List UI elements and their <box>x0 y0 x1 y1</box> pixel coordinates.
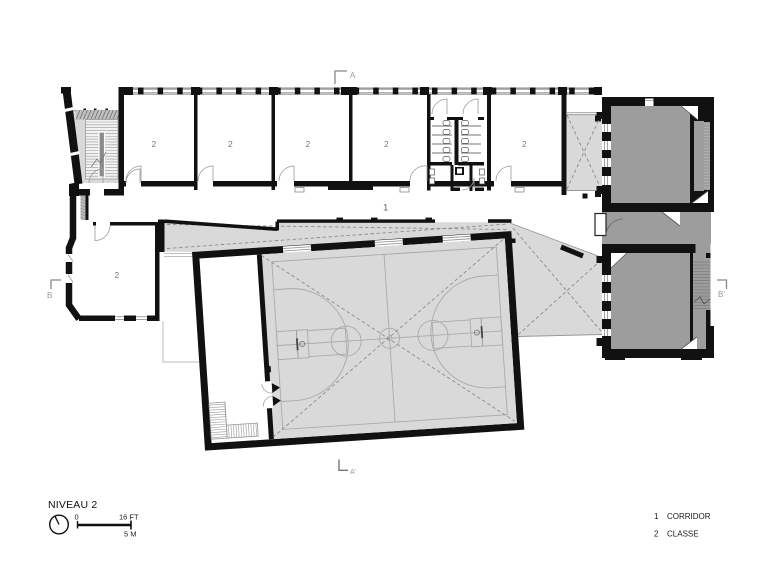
svg-text:1: 1 <box>654 512 659 521</box>
svg-text:1: 1 <box>383 203 388 214</box>
svg-text:2: 2 <box>522 139 527 149</box>
svg-text:B: B <box>47 291 52 300</box>
svg-text:A’: A’ <box>350 469 356 476</box>
svg-text:2: 2 <box>306 139 311 149</box>
svg-text:B’: B’ <box>718 290 725 299</box>
svg-text:0: 0 <box>75 513 79 522</box>
svg-text:16 FT: 16 FT <box>119 513 139 522</box>
svg-text:NIVEAU 2: NIVEAU 2 <box>48 499 97 511</box>
svg-text:2: 2 <box>384 139 389 149</box>
svg-text:2: 2 <box>152 139 157 149</box>
svg-text:CLASSE: CLASSE <box>667 530 699 539</box>
svg-text:CORRIDOR: CORRIDOR <box>667 512 711 521</box>
svg-text:A: A <box>350 71 356 80</box>
svg-text:5 M: 5 M <box>124 530 137 539</box>
svg-text:2: 2 <box>654 530 659 539</box>
svg-text:2: 2 <box>228 139 233 149</box>
svg-text:2: 2 <box>115 270 120 280</box>
